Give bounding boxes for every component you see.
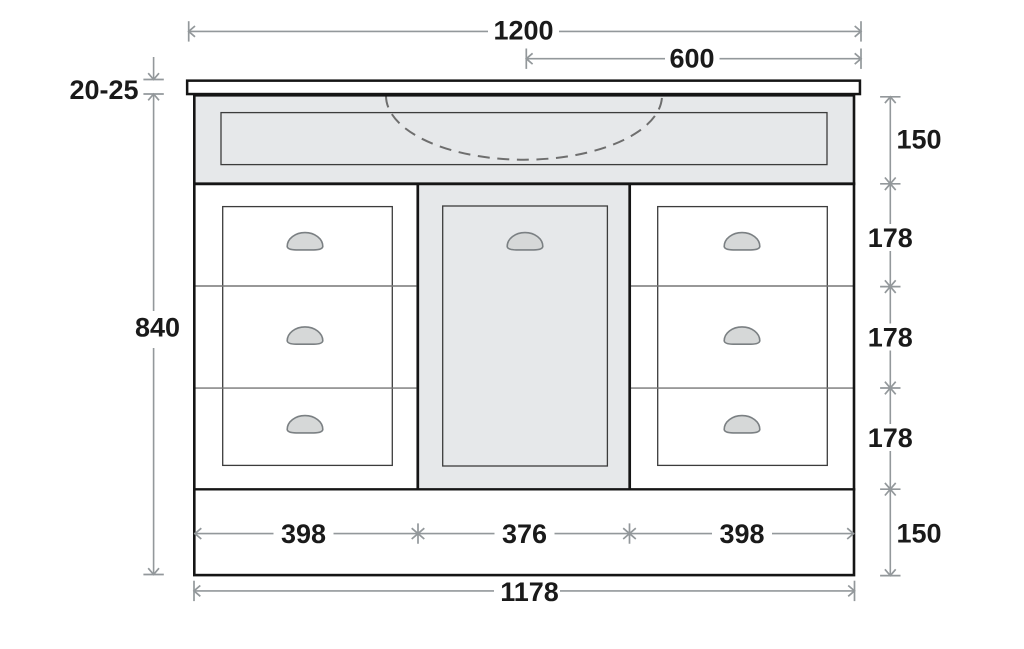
svg-text:840: 840 (135, 313, 180, 343)
svg-text:178: 178 (868, 423, 913, 453)
svg-text:398: 398 (719, 519, 764, 549)
svg-text:150: 150 (897, 518, 942, 548)
svg-text:600: 600 (669, 44, 714, 74)
svg-text:376: 376 (502, 519, 547, 549)
svg-text:178: 178 (868, 223, 913, 253)
svg-text:1178: 1178 (500, 577, 559, 607)
svg-text:150: 150 (897, 125, 942, 155)
svg-text:178: 178 (868, 322, 913, 352)
svg-text:398: 398 (281, 519, 326, 549)
svg-text:1200: 1200 (493, 15, 553, 45)
svg-text:20-25: 20-25 (69, 75, 138, 105)
